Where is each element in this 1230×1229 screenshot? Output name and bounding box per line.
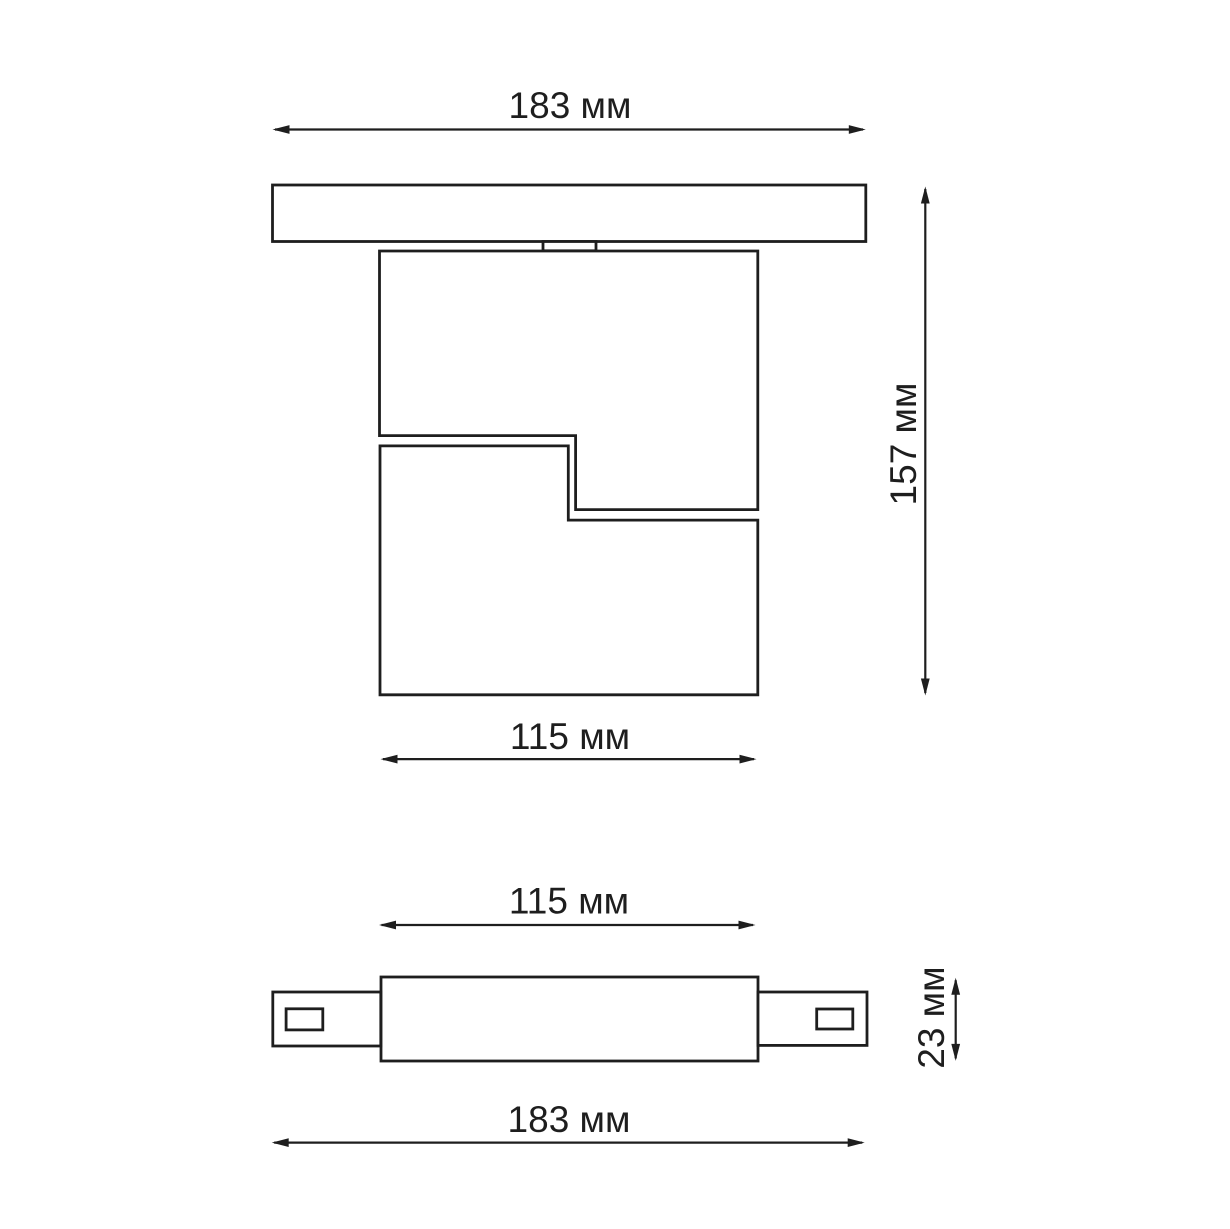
svg-text:183 мм: 183 мм (509, 85, 632, 126)
svg-text:115 мм: 115 мм (510, 716, 630, 757)
svg-text:23 мм: 23 мм (911, 966, 952, 1068)
svg-text:115 мм: 115 мм (509, 880, 629, 921)
svg-text:183 мм: 183 мм (508, 1099, 631, 1140)
svg-text:157 мм: 157 мм (883, 383, 924, 506)
